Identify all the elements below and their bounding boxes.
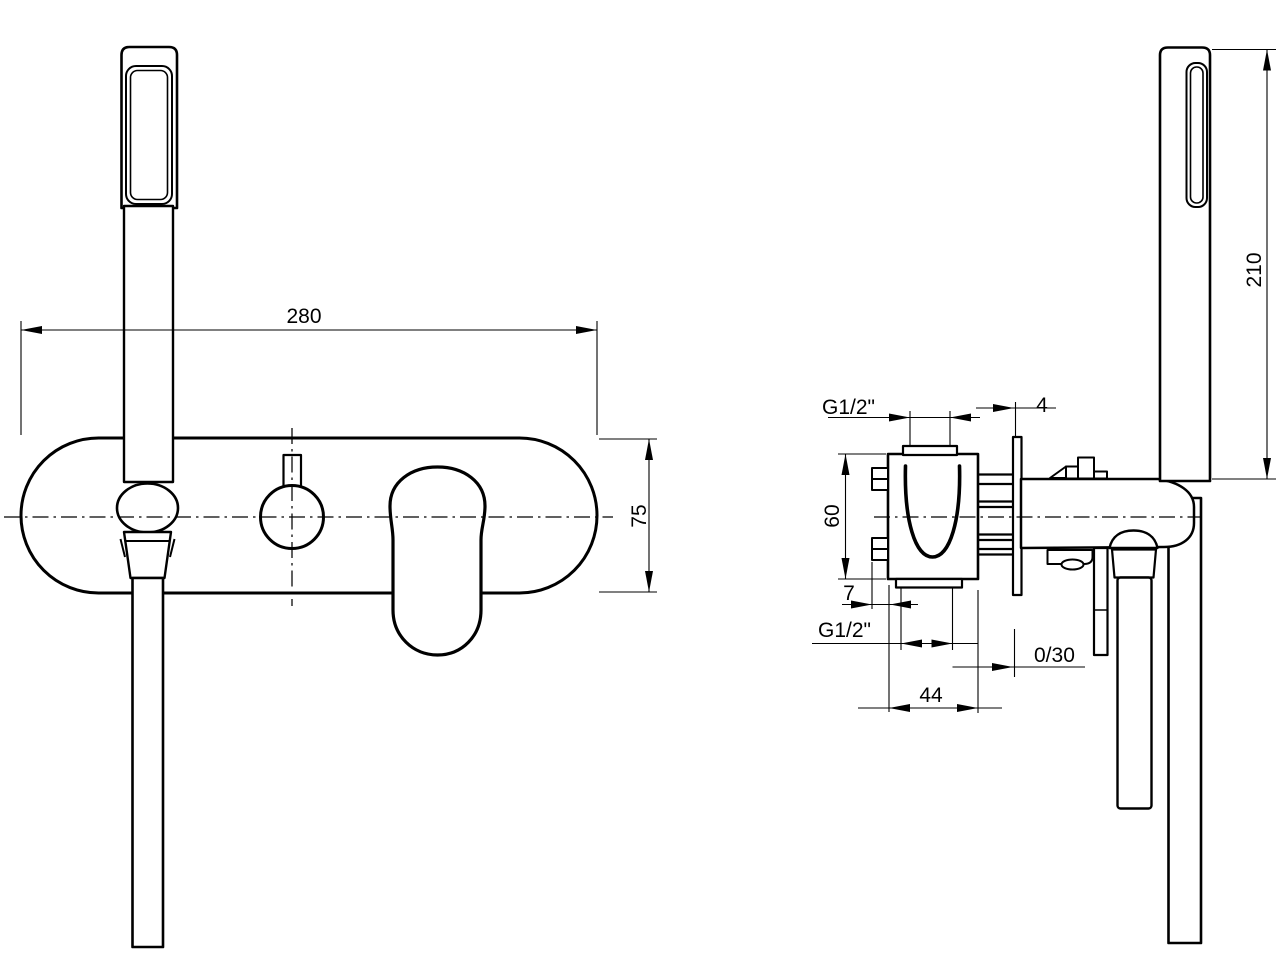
holder-bracket-knob bbox=[1062, 560, 1084, 570]
valve-port-bottom bbox=[896, 579, 962, 588]
dim-label-60: 60 bbox=[821, 504, 844, 527]
dim-body-width: 44 bbox=[858, 590, 1002, 713]
holder-ball-joint bbox=[117, 484, 178, 533]
technical-drawing: 280 75 bbox=[0, 0, 1280, 953]
lever-handle-front bbox=[390, 467, 485, 655]
dim-thread-top: G1/2" bbox=[822, 396, 980, 446]
valve-port-top bbox=[903, 446, 957, 455]
spout-side bbox=[1021, 479, 1194, 548]
dim-plate-width: 280 bbox=[21, 305, 597, 435]
dim-plate-height: 75 bbox=[599, 439, 657, 592]
holder-cone bbox=[124, 532, 171, 578]
dim-label-g12-bottom: G1/2" bbox=[818, 619, 871, 642]
dim-label-7: 7 bbox=[843, 582, 855, 605]
connection-pipes bbox=[978, 475, 1014, 555]
diverter-base-side bbox=[1066, 467, 1078, 479]
front-view: 280 75 bbox=[4, 47, 657, 947]
side-view: G1/2" 4 60 7 bbox=[812, 48, 1276, 944]
dim-label-280: 280 bbox=[286, 305, 321, 328]
dim-depth-adjust: 0/30 bbox=[953, 629, 1086, 677]
diverter-stick-side bbox=[1078, 458, 1094, 479]
dim-label-4: 4 bbox=[1036, 394, 1048, 417]
dim-label-g12-top: G1/2" bbox=[822, 396, 875, 419]
dim-label-44: 44 bbox=[919, 684, 943, 707]
lever-collar-side bbox=[1112, 550, 1156, 578]
dim-label-210: 210 bbox=[1243, 252, 1266, 287]
handshower-handle-front bbox=[124, 206, 173, 482]
dim-handshower-length: 210 bbox=[1212, 50, 1276, 480]
diverter-cap-side bbox=[1094, 472, 1107, 479]
lever-rod-side bbox=[1118, 578, 1152, 809]
dim-label-030: 0/30 bbox=[1034, 644, 1075, 667]
shower-hose-side bbox=[1169, 498, 1202, 943]
dim-label-75: 75 bbox=[628, 504, 651, 527]
holder-pin-side bbox=[1094, 548, 1108, 655]
dim-thread-bottom: G1/2" bbox=[812, 587, 978, 650]
shower-hose-front bbox=[133, 578, 164, 947]
diverter-chamfer-side bbox=[1050, 467, 1066, 479]
dim-plate-thickness: 4 bbox=[976, 394, 1056, 436]
